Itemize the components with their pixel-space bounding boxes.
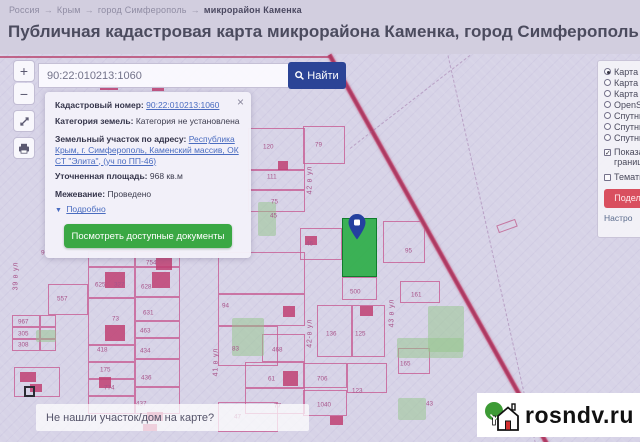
- parcel-number-label: 43: [426, 400, 433, 407]
- parcel-number-label: 434: [140, 347, 151, 354]
- parcel-not-found-box: Не нашли участок/дом на карте?: [36, 404, 309, 431]
- details-link[interactable]: Подробно: [66, 204, 105, 214]
- vegetation-area: [398, 398, 426, 420]
- settings-link[interactable]: Настро: [604, 213, 640, 223]
- parcel-cell[interactable]: [48, 284, 88, 315]
- parcel-number-label: 631: [143, 309, 154, 316]
- zoom-in-button[interactable]: +: [13, 60, 35, 82]
- building-footprint: [330, 416, 343, 425]
- map-canvas[interactable]: 9655796730530875462532762863173463434418…: [0, 54, 640, 442]
- building-outline: [24, 386, 35, 397]
- parcel-number-label: 463: [140, 327, 151, 334]
- share-button[interactable]: Подели: [604, 189, 640, 208]
- parcel-number-label: 308: [18, 341, 29, 348]
- layer-label: OpenS: [614, 100, 640, 110]
- parcel-cell[interactable]: [40, 315, 56, 327]
- parcel-number-label: 967: [18, 318, 29, 325]
- search-input[interactable]: [38, 63, 288, 88]
- parcel-number-label: 73: [112, 315, 119, 322]
- parcel-number-label: 123: [352, 387, 363, 394]
- radio-icon: [604, 134, 611, 141]
- parcel-cell[interactable]: [218, 252, 305, 294]
- parcel-number-label: 61: [268, 375, 275, 382]
- parcel-number-label: 83: [232, 345, 239, 352]
- cadastral-number-link[interactable]: 90:22:010213:1060: [146, 100, 219, 110]
- parcel-number-label: 628: [141, 283, 152, 290]
- parcel-info-popup: × Кадастровый номер: 90:22:010213:1060 К…: [45, 92, 251, 258]
- cadastral-number-label: Кадастровый номер:: [55, 100, 144, 110]
- parcel-number-label: 45: [270, 212, 277, 219]
- parcel-number-label: 46: [306, 240, 313, 247]
- parcel-cell[interactable]: [88, 362, 135, 379]
- checkbox-label: Тематич: [614, 173, 640, 183]
- parcel-number-label: 754: [146, 259, 157, 266]
- road-top-line: [0, 56, 330, 58]
- layer-radio-row[interactable]: Спутни: [604, 110, 640, 121]
- radio-icon: [604, 112, 611, 119]
- parcel-cell[interactable]: [135, 359, 180, 387]
- breadcrumb-current: микрорайон Каменка: [204, 5, 302, 15]
- area-label: Уточненная площадь:: [55, 171, 148, 181]
- parcel-number-label: 79: [315, 141, 322, 148]
- layer-radio-row[interactable]: Карта: [604, 66, 640, 77]
- category-label: Категория земель:: [55, 116, 133, 126]
- layer-options: КартаКартаКартаOpenSСпутниСпутниСпутни: [604, 66, 640, 143]
- layer-radio-row[interactable]: Спутни: [604, 121, 640, 132]
- parcel-not-found-text: Не нашли участок/дом на карте?: [46, 412, 214, 424]
- view-documents-button[interactable]: Посмотреть доступные документы: [64, 224, 232, 248]
- layer-label: Спутни: [614, 111, 640, 121]
- parcel-number-label: 161: [411, 291, 422, 298]
- street-name-label: 42-в ул: [305, 319, 313, 348]
- category-value: Категория не установлена: [136, 116, 240, 126]
- layer-radio-row[interactable]: OpenS: [604, 99, 640, 110]
- breadcrumb-link[interactable]: Россия: [9, 5, 40, 15]
- parcel-number-label: 120: [263, 143, 274, 150]
- survey-value: Проведено: [107, 189, 151, 199]
- parcel-number-label: 468: [272, 346, 283, 353]
- street-name-label: 42 в ул: [305, 166, 313, 194]
- layer-radio-row[interactable]: Карта: [604, 88, 640, 99]
- area-value: 968 кв.м: [150, 171, 183, 181]
- watermark-text: rosndv.ru: [525, 402, 634, 429]
- cadastral-map-page: Россия→Крым→город Симферополь→микрорайон…: [0, 0, 640, 442]
- parcel-number-label: 706: [317, 375, 328, 382]
- vegetation-area: [428, 306, 464, 352]
- checkbox-icon: [604, 174, 611, 181]
- building-footprint: [105, 325, 125, 341]
- radio-icon: [604, 90, 611, 97]
- parcel-cell[interactable]: [262, 334, 305, 362]
- zoom-out-button[interactable]: −: [13, 83, 35, 105]
- print-icon[interactable]: [13, 137, 35, 159]
- parcel-number-label: 1040: [317, 401, 331, 408]
- layer-label: Спутни: [614, 122, 640, 132]
- parcel-number-label: 418: [97, 346, 108, 353]
- layer-label: Карта: [614, 78, 638, 88]
- parcel-cell[interactable]: [135, 297, 180, 321]
- breadcrumb-link[interactable]: город Симферополь: [98, 5, 187, 15]
- building-footprint: [278, 161, 288, 170]
- breadcrumb-link[interactable]: Крым: [57, 5, 81, 15]
- parcel-number-label: 95: [405, 247, 412, 254]
- layer-radio-row[interactable]: Карта: [604, 77, 640, 88]
- breadcrumb-separator: →: [85, 5, 94, 15]
- street-name-label: 43 в ул: [387, 299, 395, 327]
- parcel-number-label: 75: [271, 198, 278, 205]
- layer-checkboxes: ✓Показать границыТематич: [604, 148, 640, 183]
- page-header: Россия→Крым→город Симферополь→микрорайон…: [0, 0, 640, 54]
- search-button[interactable]: Найти: [288, 62, 346, 89]
- building-footprint: [360, 306, 373, 316]
- parcel-number-label: 625: [95, 281, 106, 288]
- parcel-cell[interactable]: [88, 345, 135, 362]
- layers-panel: КартаКартаКартаOpenSСпутниСпутниСпутни ✓…: [597, 60, 640, 238]
- layer-label: Карта: [614, 67, 638, 77]
- radio-icon: [604, 101, 611, 108]
- radio-icon: [604, 123, 611, 130]
- layer-label: Карта: [614, 89, 638, 99]
- building-footprint: [156, 258, 172, 270]
- parcel-number-label: 125: [355, 330, 366, 337]
- search-button-label: Найти: [307, 70, 338, 82]
- search-icon: [295, 71, 304, 80]
- details-arrow-icon: ▼: [55, 207, 62, 214]
- parcel-number-label: 436: [141, 374, 152, 381]
- parcel-number-label: 165: [400, 360, 411, 367]
- radio-icon: [604, 79, 611, 86]
- parcel-number-label: 557: [57, 295, 68, 302]
- layer-checkbox-row[interactable]: Тематич: [604, 173, 640, 183]
- breadcrumb-separator: →: [191, 5, 200, 15]
- building-footprint: [283, 306, 295, 317]
- street-name-label: 39 в ул: [11, 262, 19, 290]
- survey-label: Межевание:: [55, 189, 105, 199]
- building-footprint: [20, 372, 36, 382]
- parcel-number-label: 500: [350, 288, 361, 295]
- parcel-number-label: 175: [100, 366, 111, 373]
- vegetation-area: [36, 330, 56, 342]
- parcel-number-label: 305: [18, 330, 29, 337]
- checkbox-label: Показать границы: [614, 148, 640, 168]
- breadcrumb-separator: →: [44, 5, 53, 15]
- watermark: rosndv.ru: [477, 393, 640, 437]
- map-pin-icon: [348, 214, 366, 240]
- checkbox-icon: ✓: [604, 149, 611, 156]
- parcel-number-label: 136: [326, 330, 337, 337]
- page-title-text: Публичная кадастровая карта микрорайона …: [8, 22, 639, 41]
- parcel-number-label: 774: [104, 384, 115, 391]
- parcel-cell[interactable]: [303, 126, 345, 164]
- search-bar: Найти: [38, 62, 346, 89]
- parcel-number-label: 111: [267, 173, 277, 180]
- radio-icon: [604, 68, 611, 75]
- parcel-number-label: 327: [114, 281, 125, 288]
- parcel-number-label: 94: [222, 302, 229, 309]
- street-name-label: 41 в ул: [211, 348, 219, 376]
- parcel-cell[interactable]: [383, 221, 425, 263]
- expand-icon[interactable]: [13, 110, 35, 132]
- rosndv-logo-icon: [484, 398, 520, 432]
- vegetation-area: [258, 202, 276, 236]
- layer-label: Спутни: [614, 133, 640, 143]
- layer-radio-row[interactable]: Спутни: [604, 132, 640, 143]
- page-title: Публичная кадастровая карта микрорайона …: [8, 22, 640, 42]
- building-footprint: [283, 371, 298, 386]
- address-label: Земельный участок по адресу:: [55, 134, 186, 144]
- close-icon[interactable]: ×: [237, 96, 244, 108]
- layer-checkbox-row[interactable]: ✓Показать границы: [604, 148, 640, 168]
- parcel-cell[interactable]: [248, 128, 305, 170]
- breadcrumb: Россия→Крым→город Симферополь→микрорайон…: [9, 5, 302, 15]
- building-footprint: [152, 272, 170, 288]
